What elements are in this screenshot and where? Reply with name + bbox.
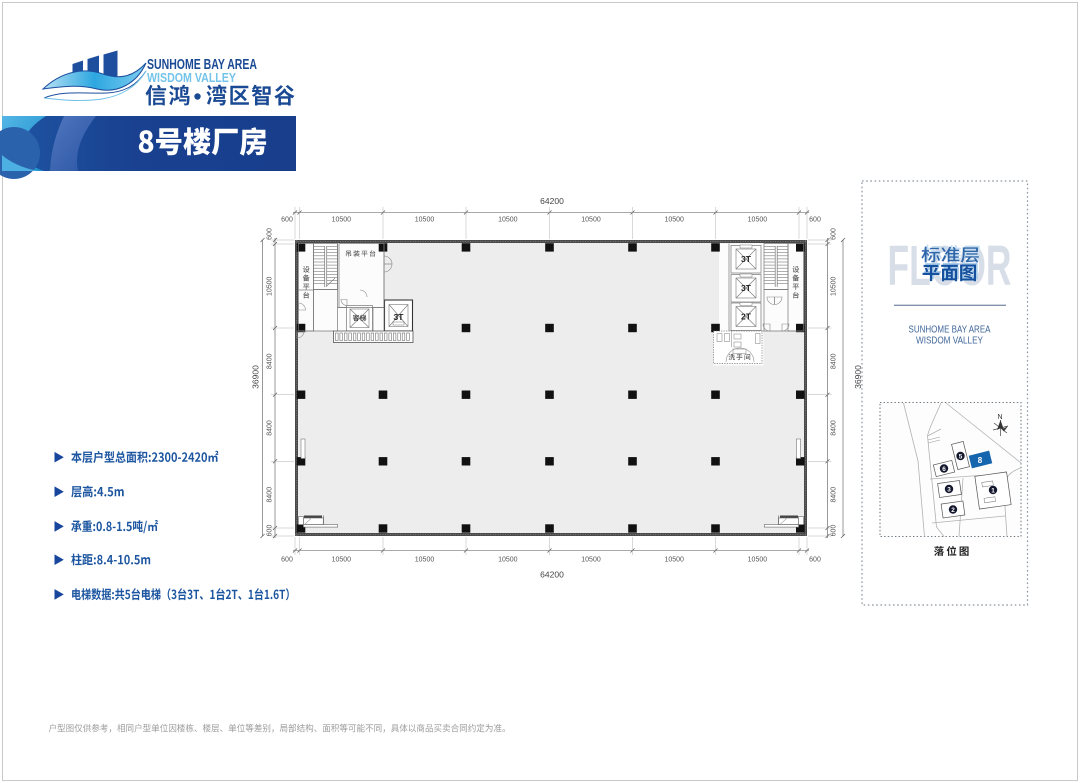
svg-text:10500: 10500	[581, 557, 601, 564]
svg-text:64200: 64200	[540, 570, 564, 580]
svg-text:2T: 2T	[741, 312, 752, 322]
svg-text:10500: 10500	[581, 217, 601, 224]
svg-text:10500: 10500	[415, 217, 435, 224]
svg-text:1: 1	[991, 487, 995, 494]
svg-text:10500: 10500	[664, 557, 684, 564]
svg-text:8: 8	[978, 456, 983, 465]
svg-text:3: 3	[947, 486, 951, 493]
svg-text:8400: 8400	[831, 353, 838, 369]
svg-text:10500: 10500	[332, 217, 352, 224]
svg-text:600: 600	[809, 557, 821, 564]
svg-text:600: 600	[267, 228, 274, 240]
svg-text:10500: 10500	[267, 276, 274, 296]
svg-text:600: 600	[281, 557, 293, 564]
svg-text:8400: 8400	[267, 420, 274, 436]
svg-text:8400: 8400	[831, 487, 838, 503]
svg-text:2: 2	[951, 507, 955, 514]
svg-text:10500: 10500	[498, 217, 518, 224]
svg-text:3T: 3T	[394, 312, 405, 322]
svg-text:8400: 8400	[831, 420, 838, 436]
svg-text:SUNHOME BAY AREA: SUNHOME BAY AREA	[909, 325, 991, 336]
svg-text:10500: 10500	[332, 557, 352, 564]
svg-text:WISDOM VALLEY: WISDOM VALLEY	[147, 71, 237, 85]
svg-text:10500: 10500	[748, 557, 768, 564]
svg-text:3T: 3T	[741, 283, 752, 293]
svg-text:64200: 64200	[540, 196, 564, 206]
svg-text:10500: 10500	[664, 217, 684, 224]
svg-text:10500: 10500	[748, 217, 768, 224]
svg-text:8400: 8400	[267, 353, 274, 369]
svg-text:6: 6	[942, 466, 946, 473]
svg-text:600: 600	[809, 217, 821, 224]
svg-text:600: 600	[831, 525, 838, 537]
svg-text:600: 600	[281, 217, 293, 224]
svg-text:8400: 8400	[267, 487, 274, 503]
svg-text:600: 600	[267, 525, 274, 537]
svg-text:3T: 3T	[741, 254, 752, 264]
svg-text:10500: 10500	[498, 557, 518, 564]
svg-text:WISDOM VALLEY: WISDOM VALLEY	[916, 336, 983, 347]
svg-text:5: 5	[959, 453, 963, 460]
svg-text:600: 600	[831, 228, 838, 240]
svg-text:10500: 10500	[415, 557, 435, 564]
svg-text:36900: 36900	[251, 365, 261, 389]
svg-text:N: N	[997, 414, 1002, 421]
svg-text:10500: 10500	[831, 276, 838, 296]
